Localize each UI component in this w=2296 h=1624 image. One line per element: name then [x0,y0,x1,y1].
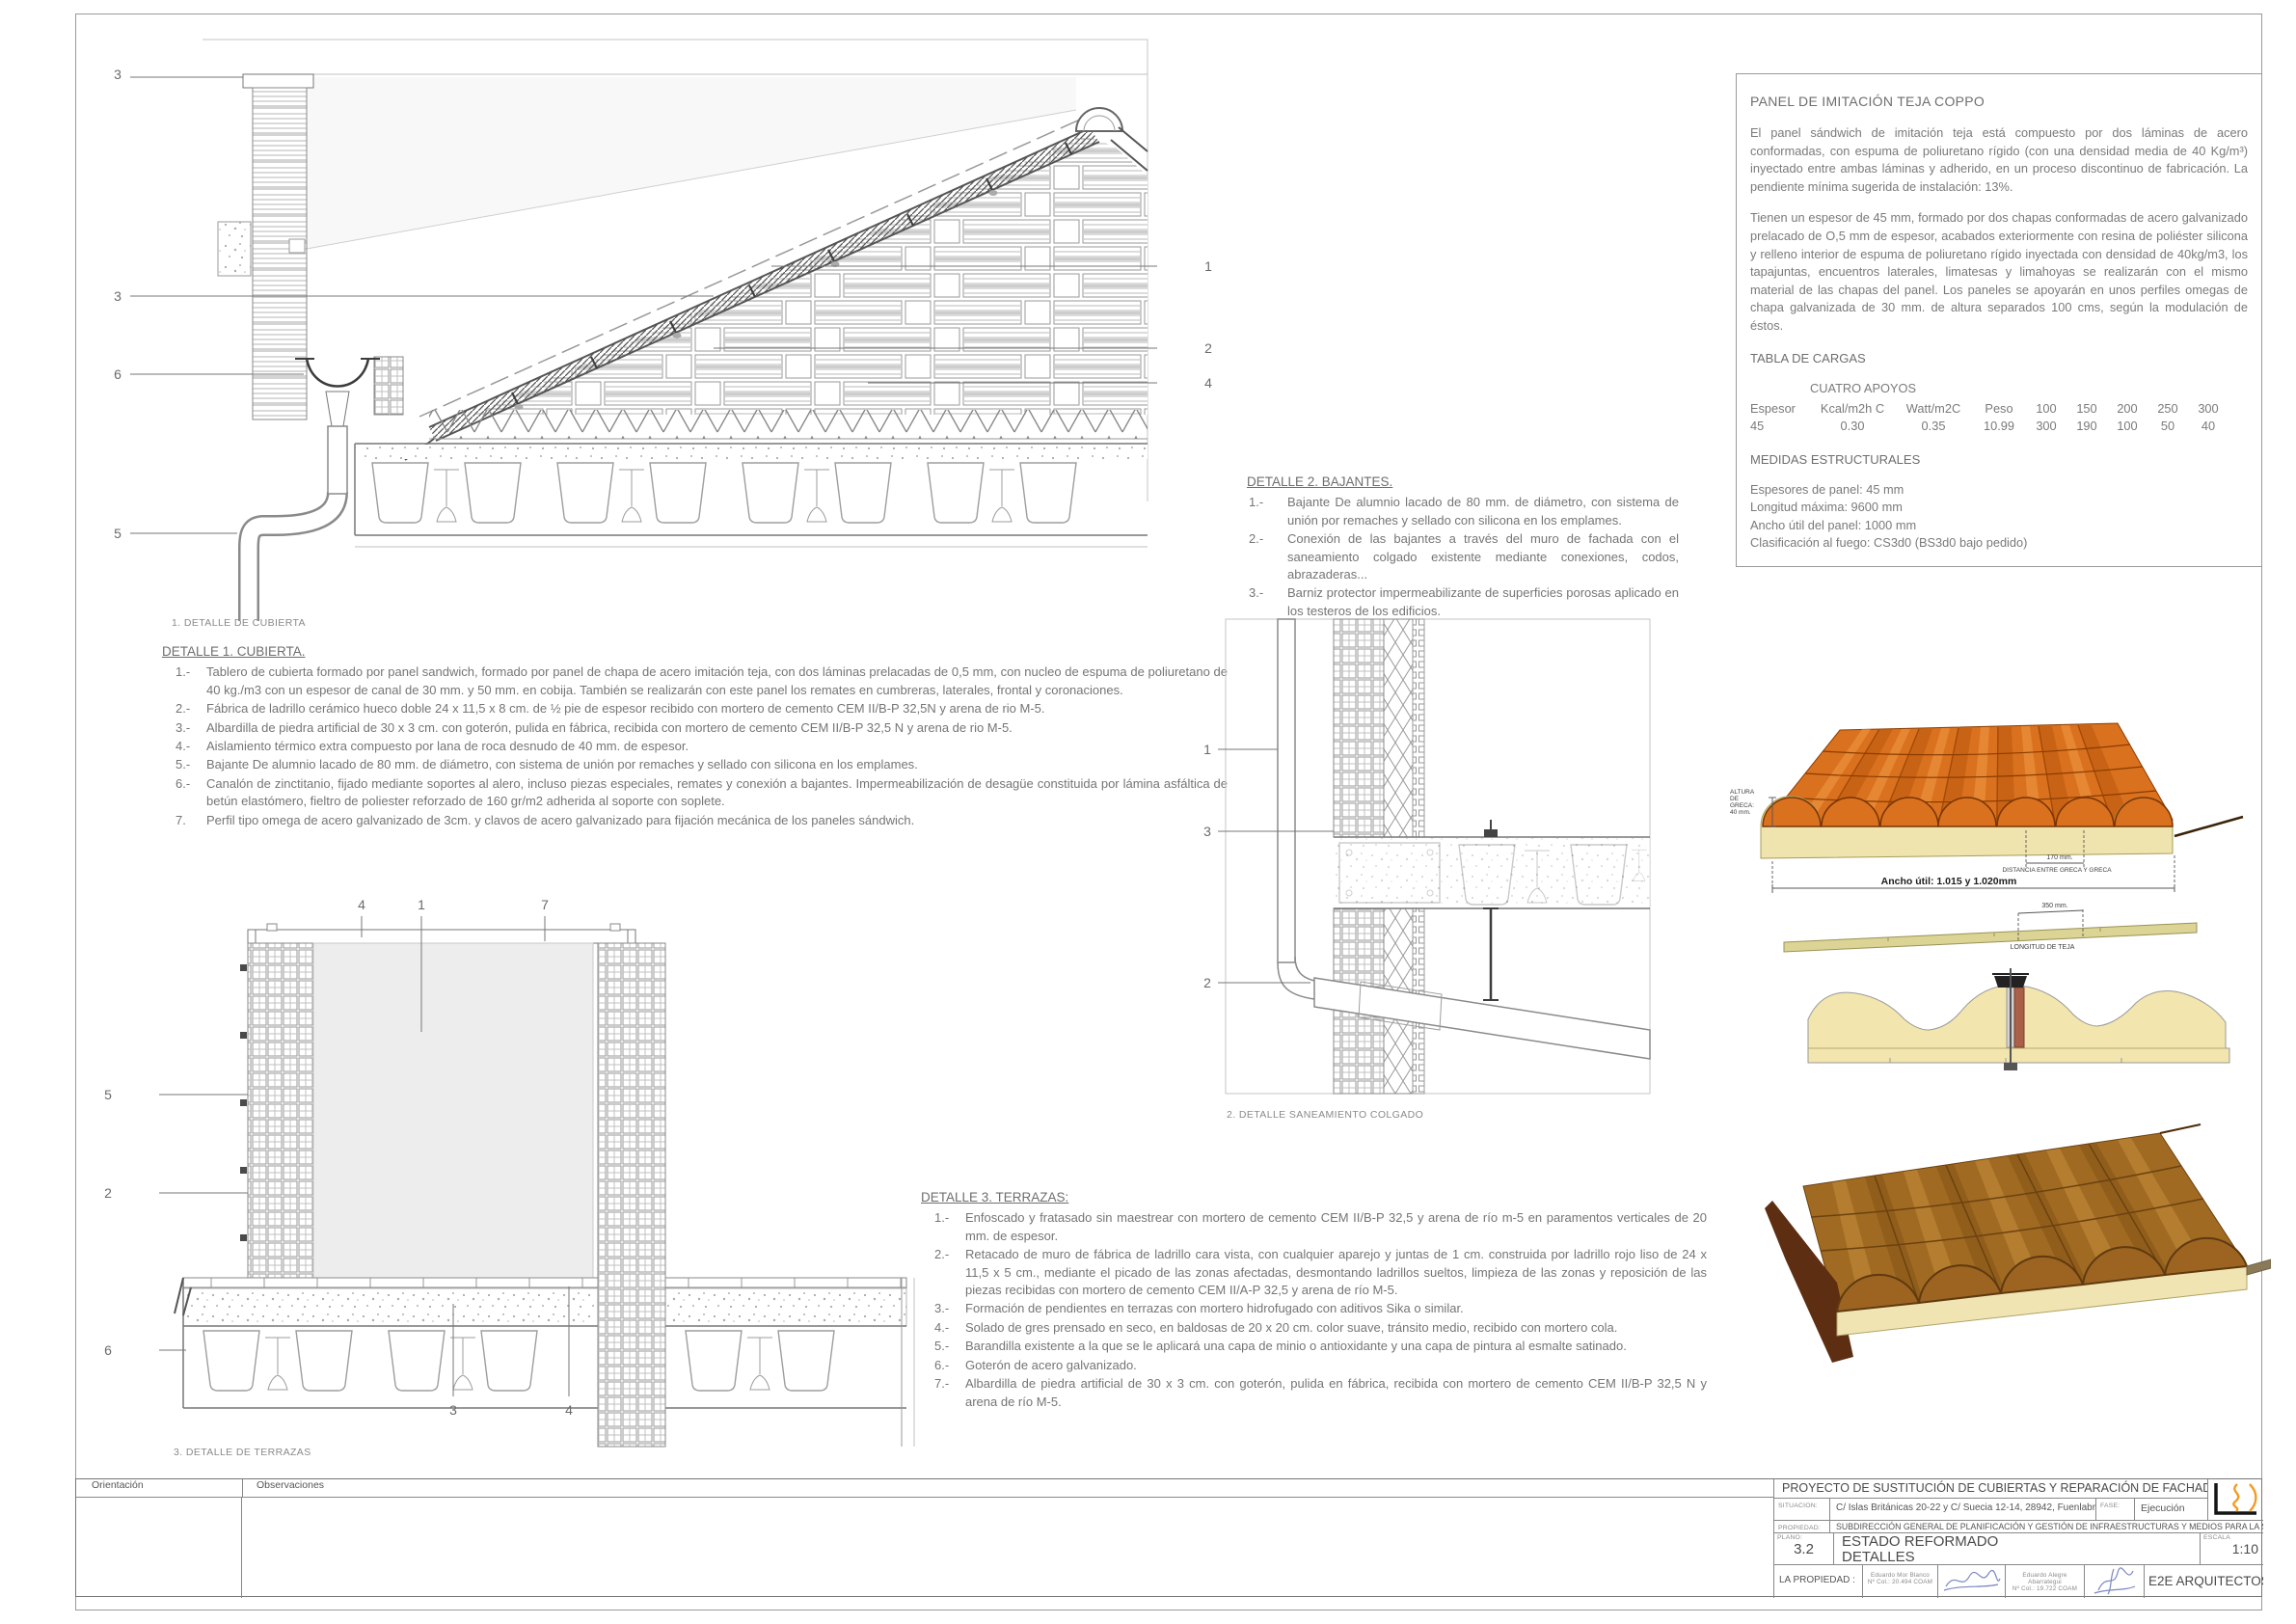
architect1-name: Eduardo Mor Blanco [1863,1572,1937,1579]
item-text: Tablero de cubierta formado por panel sa… [206,663,1228,699]
longitud-teja-label: LONGITUD DE TEJA [1956,944,2129,951]
item-number: 1.- [162,663,206,699]
dim-170-label: 170 mm. [2002,854,2118,861]
architect2-number: Nº Col.: 19.722 COAM [2006,1585,2084,1592]
medidas-title: MEDIDAS ESTRUCTURALES [1750,451,2248,470]
observaciones-label: Observaciones [257,1479,324,1491]
item-number: 3.- [162,719,206,737]
callout-d3-3b: 3 [449,1402,457,1418]
callout-d1-2: 2 [1204,340,1212,356]
callout-d3-1t: 1 [418,897,425,912]
item-text: Barandilla existente a la que se le apli… [965,1338,1707,1355]
detail3-item: 6.- Goterón de acero galvanizado. [921,1357,1707,1374]
caption-detail2: 2. DETALLE SANEAMIENTO COLGADO [1227,1109,1423,1121]
situacion-label: SITUACION: [1778,1502,1818,1509]
tabla-value-cell: 10.99 [1972,418,2026,436]
plano-label: PLANO: [1777,1534,1833,1541]
callout-d3-5: 5 [104,1087,112,1102]
tabla-value-cell: 190 [2066,418,2107,436]
item-number: 6.- [921,1357,965,1374]
propiedad-label: PROPIEDAD: [1778,1525,1821,1531]
brown-panel-render [1745,1104,2271,1374]
detail3-item: 5.- Barandilla existente a la que se le … [921,1338,1707,1355]
item-number: 7. [162,812,206,829]
callout-d1-3a: 3 [114,67,122,82]
callout-d2-3: 3 [1203,824,1211,839]
escala-value: 1:10 [2201,1541,2258,1556]
tabla-value-cell: 40 [2188,418,2228,436]
detail3-item: 3.- Formación de pendientes en terrazas … [921,1300,1707,1317]
tabla-header-cell: 100 [2026,400,2066,419]
coppo-panel-render [1743,709,2255,964]
tabla-header-cell: 150 [2066,400,2107,419]
detail1-notes: DETALLE 1. CUBIERTA. 1.- Tablero de cubi… [162,642,1228,830]
item-number: 1.- [921,1209,965,1245]
item-text: Barniz protector impermeabilizante de su… [1287,584,1679,620]
callout-d1-6: 6 [114,366,122,382]
tabla-header-cell: Espesor [1750,400,1810,419]
plano-title-line1: ESTADO REFORMADO [1842,1534,2200,1550]
item-text: Conexión de las bajantes a través del mu… [1287,530,1679,583]
title-block: Orientación Observaciones PROYECTO DE SU… [75,1478,2262,1597]
item-number: 5.- [162,756,206,773]
detail1-item: 6.- Canalón de zinctitanio, fijado media… [162,775,1228,811]
caption-detail3: 3. DETALLE DE TERRAZAS [174,1447,311,1458]
callout-d3-6: 6 [104,1342,112,1358]
tabla-value-cell: 50 [2147,418,2188,436]
item-text: Bajante De alumnio lacado de 80 mm. de d… [206,756,1228,773]
item-number: 3.- [921,1300,965,1317]
item-number: 2.- [1247,530,1287,583]
situacion-value: C/ Islas Británicas 20-22 y C/ Suecia 12… [1836,1502,2095,1513]
callout-d2-2: 2 [1203,975,1211,990]
architect2-name: Eduardo Alegre Abarrategui [2006,1572,2084,1585]
item-text: Canalón de zinctitanio, fijado mediante … [206,775,1228,811]
item-text: Enfoscado y fratasado sin maestrear con … [965,1209,1707,1245]
detail1-roof-section-drawing [96,29,1157,627]
orientacion-box [76,1498,242,1598]
detail1-item: 7. Perfil tipo omega de acero galvanizad… [162,812,1228,829]
callout-d3-2: 2 [104,1185,112,1201]
item-number: 3.- [1247,584,1287,620]
item-number: 2.- [921,1246,965,1299]
plano-number: 3.2 [1774,1541,1833,1557]
callout-d3-4t: 4 [358,897,365,912]
item-text: Perfil tipo omega de acero galvanizado d… [206,812,1228,829]
tabla-header-cell: 200 [2107,400,2147,419]
panel-info-paragraph1: El panel sándwich de imitación teja está… [1750,124,2248,196]
item-text: Aislamiento térmico extra compuesto por … [206,738,1228,755]
tabla-header-cell: Kcal/m2h C [1810,400,1895,419]
la-propiedad-label: LA PROPIEDAD : [1779,1575,1862,1585]
item-text: Retacado de muro de fábrica de ladrillo … [965,1246,1707,1299]
tabla-header-cell: 250 [2147,400,2188,419]
item-number: 4.- [162,738,206,755]
item-number: 5.- [921,1338,965,1355]
altura-greca-label: ALTURA DE GRECA: 40 mm. [1730,789,1774,816]
panel-info-box: PANEL DE IMITACIÓN TEJA COPPO El panel s… [1736,73,2262,567]
firm-name: E2E ARQUITECTOS [2148,1574,2263,1588]
tabla-cargas-value-row: 450.300.3510.993001901005040 [1750,418,2248,436]
detail3-notes: DETALLE 3. TERRAZAS: 1.- Enfoscado y fra… [921,1188,1707,1412]
detail3-item: 2.- Retacado de muro de fábrica de ladri… [921,1246,1707,1299]
detail1-item: 3.- Albardilla de piedra artificial de 3… [162,719,1228,737]
detail3-terrace-drawing [159,887,931,1456]
detail1-item: 5.- Bajante De alumnio lacado de 80 mm. … [162,756,1228,773]
fase-label: FASE: [2100,1502,2120,1509]
detail1-item: 4.- Aislamiento térmico extra compuesto … [162,738,1228,755]
item-text: Goterón de acero galvanizado. [965,1357,1707,1374]
callout-d1-3b: 3 [114,288,122,304]
propiedad-value: SUBDIRECCIÓN GENERAL DE PLANIFICACIÓN Y … [1836,1522,2263,1531]
plano-title-line2: DETALLES [1842,1550,2200,1564]
architect1-number: Nº Col.: 20.494 COAM [1863,1579,1937,1585]
tabla-value-cell: 45 [1750,418,1810,436]
item-number: 4.- [921,1319,965,1337]
tabla-header-cell: 300 [2188,400,2228,419]
callout-d1-1: 1 [1204,258,1212,274]
medidas-line: Espesores de panel: 45 mm [1750,481,2248,500]
dim-350-label: 350 mm. [1997,903,2113,909]
item-number: 2.- [162,700,206,717]
caption-detail1: 1. DETALLE DE CUBIERTA [172,617,306,629]
orientacion-label: Orientación [92,1479,144,1491]
tabla-header-cell: Watt/m2C [1895,400,1972,419]
detail3-item: 1.- Enfoscado y fratasado sin maestrear … [921,1209,1707,1245]
medidas-lines: Espesores de panel: 45 mmLongitud máxima… [1750,481,2248,553]
callout-d3-4b: 4 [565,1402,573,1418]
tabla-header-cell: Peso [1972,400,2026,419]
detail2-item: 2.- Conexión de las bajantes a través de… [1247,530,1679,583]
medidas-line: Clasificación al fuego: CS3d0 (BS3d0 baj… [1750,534,2248,553]
logo-box [2207,1479,2263,1520]
item-number: 6.- [162,775,206,811]
signature-2 [2084,1564,2144,1598]
detail2-notes: DETALLE 2. BAJANTES. 1.- Bajante De alum… [1247,473,1679,621]
distancia-greca-label: DISTANCIA ENTRE GRECA Y GRECA [1941,867,2173,874]
detail2-item: 1.- Bajante De alumnio lacado de 80 mm. … [1247,494,1679,529]
drawing-sheet: 3 3 6 5 1 2 4 1. DETALLE DE CUBIERTA DET… [0,0,2296,1624]
item-text: Albardilla de piedra artificial de 30 x … [206,719,1228,737]
medidas-line: Ancho útil del panel: 1000 mm [1750,517,2248,535]
item-text: Albardilla de piedra artificial de 30 x … [965,1375,1707,1411]
detail1-title: DETALLE 1. CUBIERTA. [162,642,1228,661]
callout-d3-7t: 7 [541,897,549,912]
callout-d2-1: 1 [1203,742,1211,757]
item-text: Bajante De alumnio lacado de 80 mm. de d… [1287,494,1679,529]
tabla-value-cell: 0.35 [1895,418,1972,436]
item-text: Fábrica de ladrillo cerámico hueco doble… [206,700,1228,717]
signature-1 [1937,1564,2005,1598]
panel-cross-section-render [1803,966,2237,1077]
item-text: Formación de pendientes en terrazas con … [965,1300,1707,1317]
medidas-line: Longitud máxima: 9600 mm [1750,499,2248,517]
fase-value: Ejecución [2141,1502,2207,1514]
tabla-value-cell: 100 [2107,418,2147,436]
callout-d1-4: 4 [1204,375,1212,391]
tabla-value-cell: 0.30 [1810,418,1895,436]
detail3-item: 4.- Solado de gres prensado en seco, en … [921,1319,1707,1337]
detail2-title: DETALLE 2. BAJANTES. [1247,473,1679,491]
panel-info-title: PANEL DE IMITACIÓN TEJA COPPO [1750,92,2248,111]
tabla-cargas-subtitle: CUATRO APOYOS [1810,380,2248,398]
tabla-cargas-title: TABLA DE CARGAS [1750,350,2248,368]
detail3-item: 7.- Albardilla de piedra artificial de 3… [921,1375,1707,1411]
item-number: 1.- [1247,494,1287,529]
e2e-logo-icon [2208,1479,2262,1518]
panel-info-paragraph2: Tienen un espesor de 45 mm, formado por … [1750,209,2248,335]
item-number: 7.- [921,1375,965,1411]
callout-d1-5: 5 [114,526,122,541]
detail1-item: 2.- Fábrica de ladrillo cerámico hueco d… [162,700,1228,717]
ancho-util-label: Ancho útil: 1.015 y 1.020mm [1830,876,2067,887]
item-text: Solado de gres prensado en seco, en bald… [965,1319,1707,1337]
detail3-title: DETALLE 3. TERRAZAS: [921,1188,1707,1206]
detail2-item: 3.- Barniz protector impermeabilizante d… [1247,584,1679,620]
project-title: PROYECTO DE SUSTITUCIÓN DE CUBIERTAS Y R… [1782,1481,2207,1495]
detail1-item: 1.- Tablero de cubierta formado por pane… [162,663,1228,699]
tabla-cargas-header-row: EspesorKcal/m2h CWatt/m2CPeso10015020025… [1750,400,2248,419]
tabla-value-cell: 300 [2026,418,2066,436]
detail2-drainage-drawing [1218,617,1657,1099]
escala-label: ESCALA [2203,1534,2263,1541]
